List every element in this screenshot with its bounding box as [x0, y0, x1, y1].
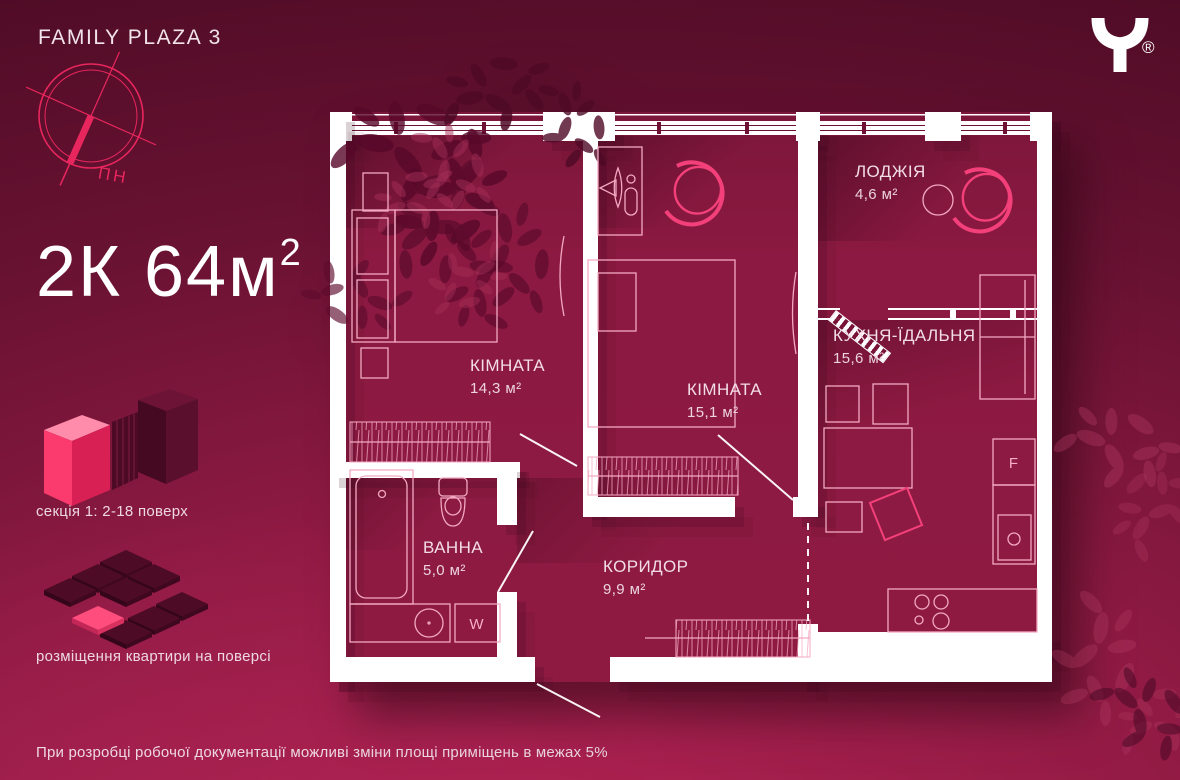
apartment-headline-sup: 2	[280, 232, 303, 274]
section-caption: секція 1: 2-18 поверх	[36, 503, 188, 520]
room-label-bedroom-1: КІМНАТА 14,3 м²	[470, 354, 545, 399]
room-label-kitchen: КУХНЯ-ЇДАЛЬНЯ 15,6 м²	[833, 324, 975, 369]
floor-plan: F	[330, 110, 1052, 682]
building-section-icon	[36, 360, 221, 510]
dining-set-icon	[824, 384, 922, 540]
washing-machine-mark: W	[469, 616, 484, 633]
washing-machine-icon: W	[455, 604, 500, 642]
bed-icon	[352, 173, 497, 378]
room-name: ЛОДЖІЯ	[855, 160, 926, 184]
toilet-icon	[439, 478, 467, 526]
room-label-bedroom-2: КІМНАТА 15,1 м²	[687, 378, 762, 423]
placement-caption: розміщення квартири на поверсі	[36, 648, 271, 665]
wardrobe-icon	[588, 457, 738, 495]
apartment-headline: 2К 64м2	[36, 236, 303, 308]
sofa-icon	[980, 275, 1035, 399]
room-label-loggia: ЛОДЖІЯ 4,6 м²	[855, 160, 926, 205]
room-area: 15,6 м²	[833, 348, 975, 369]
desk-icon	[598, 147, 642, 235]
project-title: FAMILY PLAZA 3	[38, 26, 222, 50]
oven-icon	[993, 485, 1035, 564]
room-area: 14,3 м²	[470, 378, 545, 399]
room-label-bathroom: ВАННА 5,0 м²	[423, 536, 483, 581]
room-name: КІМНАТА	[470, 354, 545, 378]
room-area: 9,9 м²	[603, 579, 688, 600]
floor-placement-icon	[28, 536, 238, 656]
armchair-icon	[666, 162, 723, 224]
room-area: 5,0 м²	[423, 560, 483, 581]
room-name: КОРИДОР	[603, 555, 688, 579]
page: FAMILY PLAZA 3 ПН 2К 64м2 секція 1: 2-18…	[0, 0, 1180, 780]
registered-mark: ®	[1142, 38, 1155, 58]
room-area: 4,6 м²	[855, 184, 926, 205]
room-name: КУХНЯ-ЇДАЛЬНЯ	[833, 324, 975, 348]
room-label-corridor: КОРИДОР 9,9 м²	[603, 555, 688, 600]
disclaimer-text: При розробці робочої документації можлив…	[36, 744, 608, 761]
loggia-chair-icon	[923, 169, 1011, 231]
curtain-icon	[793, 272, 797, 354]
stove-counter-icon	[888, 589, 1037, 632]
curtain-icon	[560, 236, 564, 316]
sink-counter-icon	[350, 604, 450, 642]
room-name: ВАННА	[423, 536, 483, 560]
wardrobe-icon	[645, 620, 810, 657]
room-name: КІМНАТА	[687, 378, 762, 402]
bathtub-icon	[350, 470, 413, 604]
fridge-mark: F	[1009, 455, 1019, 472]
wardrobe-icon	[350, 422, 490, 462]
room-area: 15,1 м²	[687, 402, 762, 423]
foliage-decoration-icon	[1046, 398, 1180, 780]
fridge-icon: F	[993, 439, 1035, 485]
apartment-headline-text: 2К 64м	[36, 232, 280, 312]
